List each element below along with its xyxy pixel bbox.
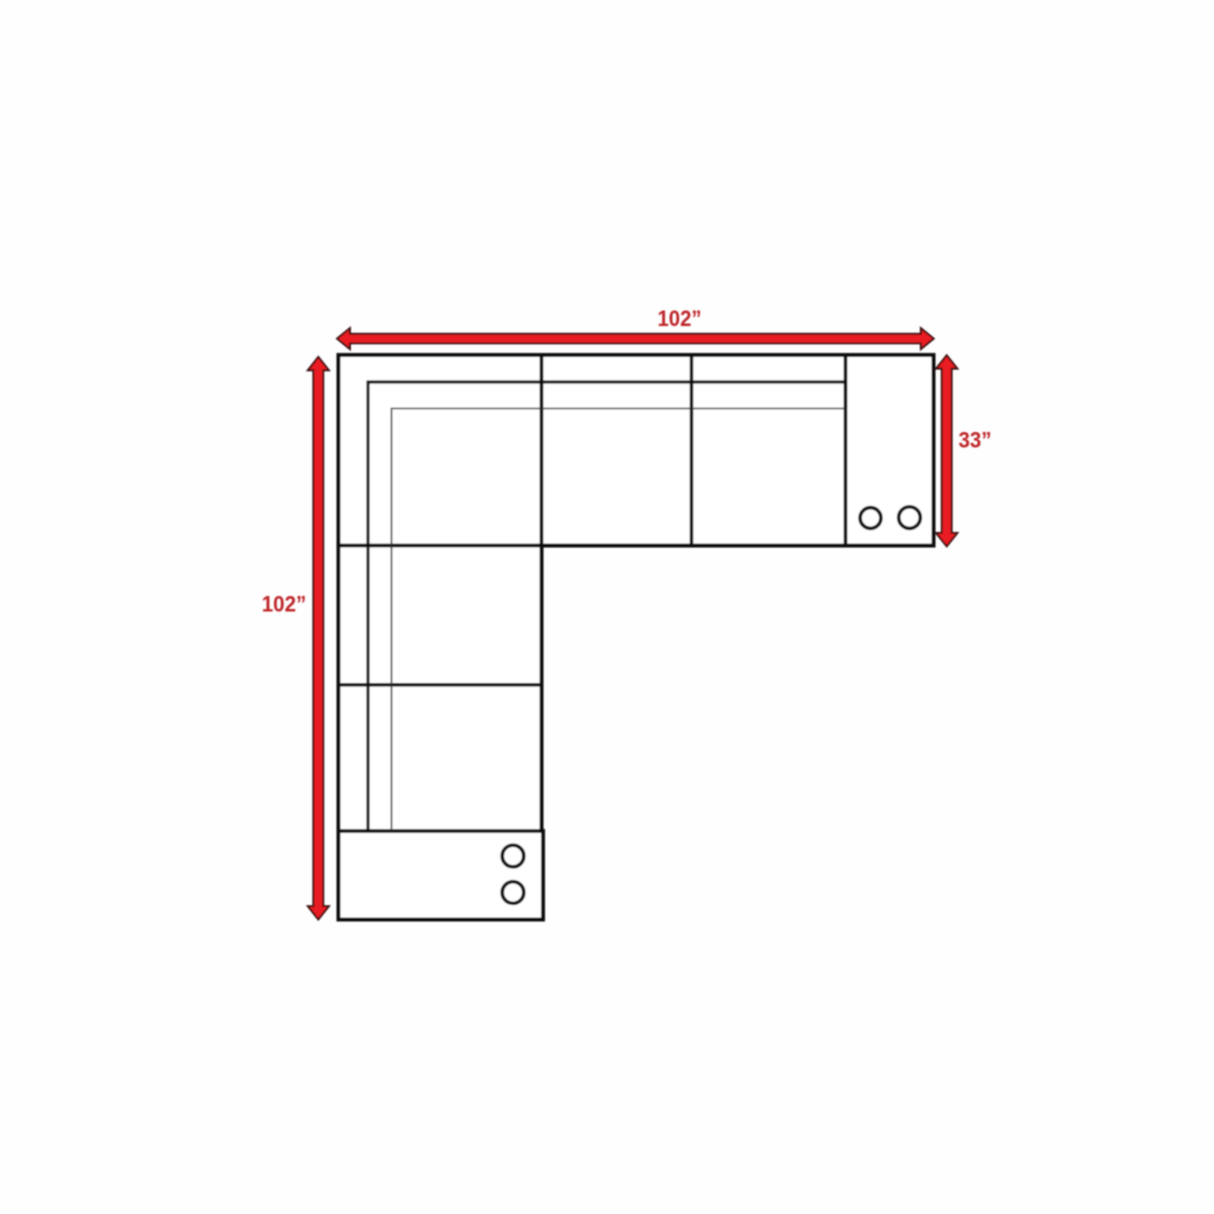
svg-text:33”: 33” [959, 428, 992, 453]
svg-text:102”: 102” [658, 306, 702, 331]
svg-text:102”: 102” [262, 592, 307, 617]
